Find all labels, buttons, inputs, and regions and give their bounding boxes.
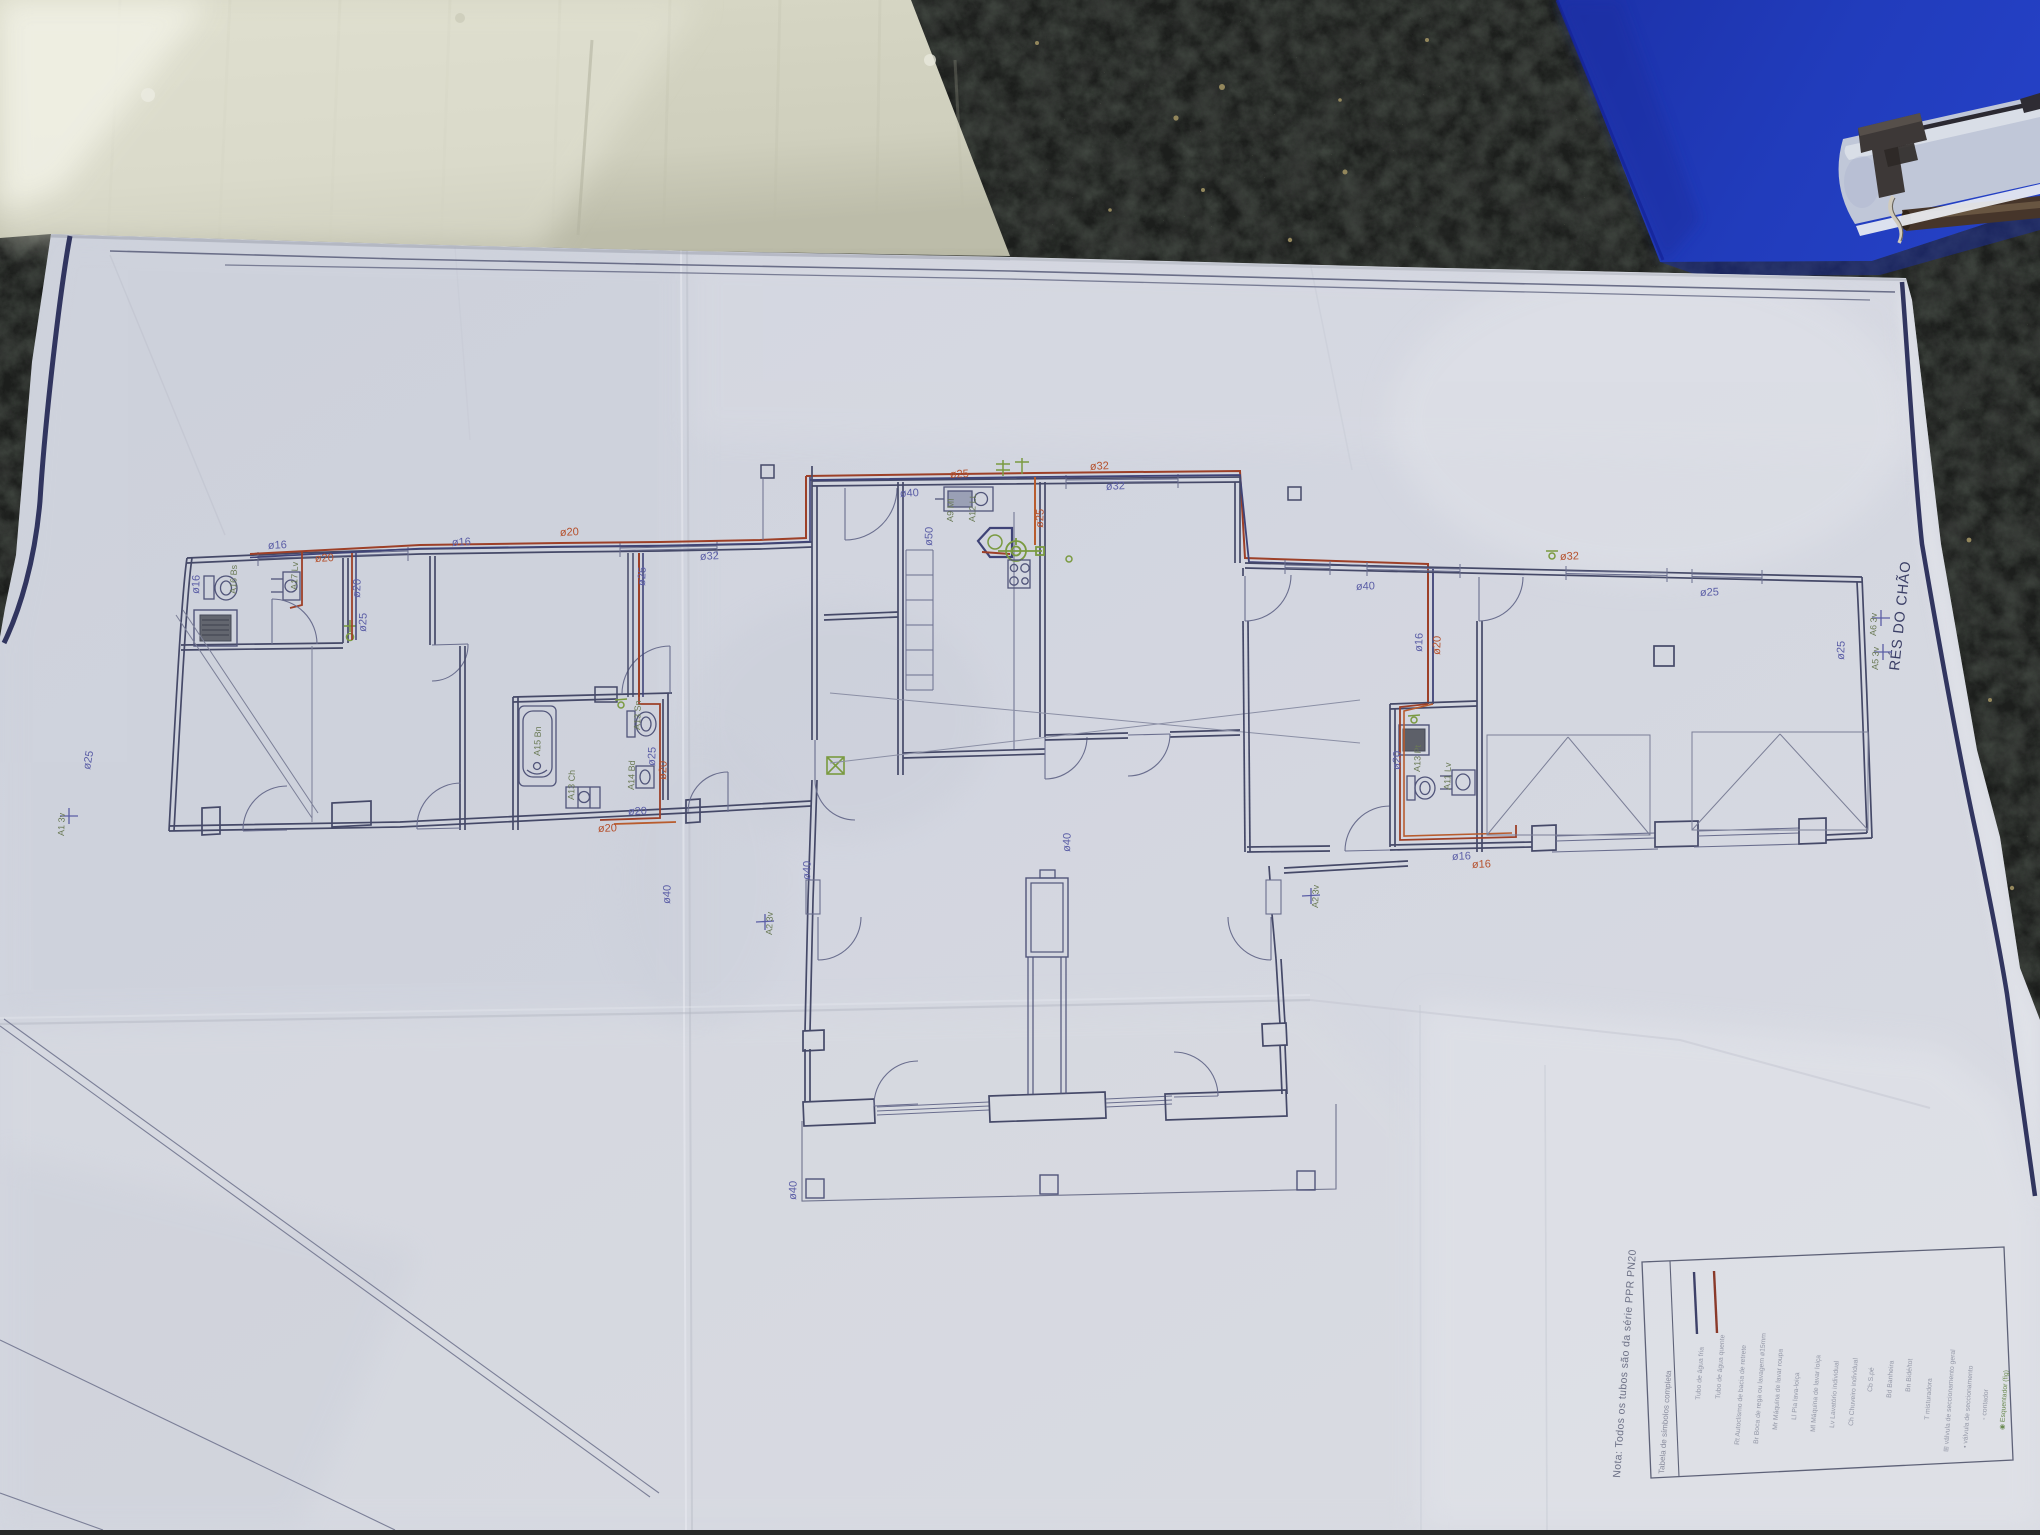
svg-text:ø20: ø20 [560,526,580,539]
svg-text:ø50: ø50 [923,527,936,546]
svg-text:A5 3v: A5 3v [1870,646,1881,670]
svg-text:ø40: ø40 [661,885,674,904]
svg-text:A2 3v: A2 3v [1310,884,1321,908]
svg-text:ø25: ø25 [950,468,970,481]
svg-text:ø32: ø32 [1090,460,1110,473]
svg-text:ø40: ø40 [1356,580,1375,593]
svg-text:ø20: ø20 [628,805,647,818]
svg-text:ø16: ø16 [1452,850,1471,863]
svg-text:ø16: ø16 [1472,858,1491,871]
svg-text:A13 Ch: A13 Ch [566,770,577,800]
svg-text:ø25: ø25 [1034,509,1047,528]
svg-text:ø32: ø32 [700,550,720,563]
svg-text:ø40: ø40 [787,1181,800,1200]
svg-text:A11 Lv: A11 Lv [1442,762,1453,790]
svg-text:A1 3v: A1 3v [56,812,67,836]
svg-text:ø40: ø40 [801,861,814,880]
svg-text:A17 Lv: A17 Lv [289,561,300,590]
svg-text:ø16: ø16 [190,575,203,594]
svg-text:ø16: ø16 [452,536,472,549]
svg-text:A6 3v: A6 3v [1868,612,1879,636]
svg-text:A12 LL: A12 LL [967,493,978,522]
svg-text:A16 Bs: A16 Bs [228,564,239,594]
svg-text:A13 Sn: A13 Sn [632,700,643,730]
svg-text:ø40: ø40 [1061,833,1074,852]
svg-text:ø25: ø25 [357,613,370,632]
svg-text:ø20: ø20 [598,822,617,835]
svg-text:ø32: ø32 [1560,550,1579,563]
svg-text:A14 Bd: A14 Bd [626,760,637,790]
svg-text:ø16: ø16 [268,539,288,552]
svg-text:A9 MI: A9 MI [945,498,956,522]
svg-text:ø20: ø20 [657,761,670,780]
svg-text:A2 3v: A2 3v [764,911,775,935]
svg-text:ø16: ø16 [1413,633,1426,652]
svg-text:ø40: ø40 [900,487,920,500]
svg-text:ø20: ø20 [351,579,364,598]
svg-text:ø25: ø25 [636,567,649,586]
svg-text:ø25: ø25 [1835,641,1848,660]
svg-text:A15 Bn: A15 Bn [532,726,543,756]
svg-text:ø32: ø32 [1106,480,1126,493]
svg-text:ø25: ø25 [1700,586,1719,599]
svg-text:ø20: ø20 [1431,636,1444,655]
svg-text:ø20: ø20 [1391,751,1404,770]
svg-text:ø20: ø20 [315,552,335,565]
svg-text:A13 Pt: A13 Pt [1412,744,1423,772]
